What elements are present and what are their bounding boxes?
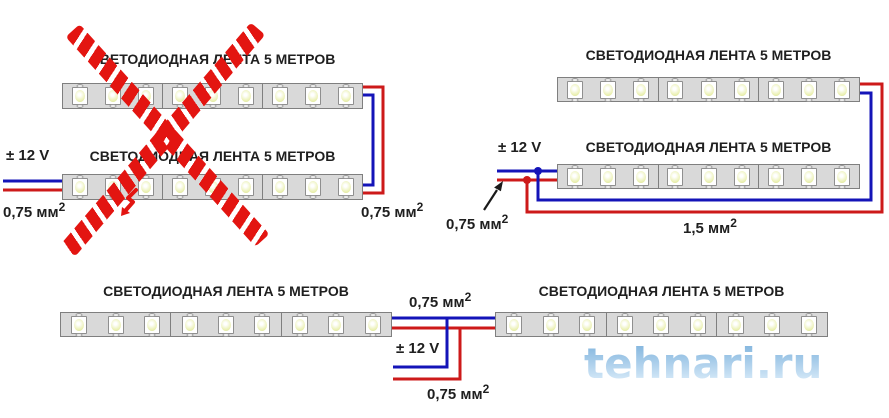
led-chip-icon <box>728 316 744 334</box>
led-chip-icon <box>238 178 254 196</box>
led-glow-icon <box>620 319 630 331</box>
gauge-value: 0,75 мм <box>361 204 417 221</box>
strip-segment <box>496 313 607 336</box>
led-glow-icon <box>241 181 251 193</box>
led-chip-icon <box>172 87 188 105</box>
led-glow-icon <box>147 319 157 331</box>
led-chip-icon <box>338 178 354 196</box>
led-chip-icon <box>108 316 124 334</box>
led-chip-icon <box>567 168 583 186</box>
led-chip-icon <box>768 168 784 186</box>
gauge-pointer-arrow <box>484 190 497 210</box>
led-chip-icon <box>667 81 683 99</box>
led-glow-icon <box>241 90 251 102</box>
series-link-wire-blue <box>362 95 373 185</box>
led-glow-icon <box>185 319 195 331</box>
led-strip <box>495 312 828 337</box>
led-chip-icon <box>138 178 154 196</box>
strip-segment <box>607 313 718 336</box>
strip-title: СВЕТОДИОДНАЯ ЛЕНТА 5 МЕТРОВ <box>557 139 860 155</box>
led-chip-icon <box>144 316 160 334</box>
gauge-value: 0,75 мм <box>446 216 502 233</box>
led-chip-icon <box>506 316 522 334</box>
led-chip-icon <box>834 81 850 99</box>
led-glow-icon <box>771 84 781 96</box>
led-strip <box>62 83 363 109</box>
strip-segment <box>263 175 362 199</box>
led-glow-icon <box>737 171 747 183</box>
led-glow-icon <box>141 181 151 193</box>
gauge-label: 0,75 мм2 <box>427 382 489 403</box>
strip-title: СВЕТОДИОДНАЯ ЛЕНТА 5 МЕТРОВ <box>62 51 363 67</box>
led-glow-icon <box>141 90 151 102</box>
led-glow-icon <box>275 90 285 102</box>
led-chip-icon <box>600 168 616 186</box>
led-glow-icon <box>74 319 84 331</box>
strip-segment <box>659 78 760 101</box>
strip-segment <box>171 313 281 336</box>
led-chip-icon <box>617 316 633 334</box>
strip-title: СВЕТОДИОДНАЯ ЛЕНТА 5 МЕТРОВ <box>495 283 828 299</box>
strip-title: СВЕТОДИОДНАЯ ЛЕНТА 5 МЕТРОВ <box>60 283 392 299</box>
led-strip <box>60 312 392 337</box>
led-chip-icon <box>734 81 750 99</box>
led-chip-icon <box>801 81 817 99</box>
led-chip-icon <box>305 87 321 105</box>
led-glow-icon <box>731 319 741 331</box>
strip-segment <box>659 165 760 188</box>
led-glow-icon <box>221 319 231 331</box>
led-chip-icon <box>105 87 121 105</box>
strip-segment <box>282 313 391 336</box>
voltage-label: ± 12 V <box>498 139 541 156</box>
led-glow-icon <box>636 171 646 183</box>
led-chip-icon <box>734 168 750 186</box>
led-strip <box>557 77 860 102</box>
gauge-sup: 2 <box>483 382 490 396</box>
gauge-label: 1,5 мм2 <box>683 216 737 237</box>
led-chip-icon <box>182 316 198 334</box>
led-glow-icon <box>656 319 666 331</box>
led-glow-icon <box>570 171 580 183</box>
voltage-label: ± 12 V <box>396 340 439 357</box>
led-glow-icon <box>704 171 714 183</box>
strip-segment <box>558 165 659 188</box>
led-glow-icon <box>75 90 85 102</box>
strip-segment <box>717 313 827 336</box>
led-glow-icon <box>804 171 814 183</box>
strip-segment <box>759 78 859 101</box>
led-chip-icon <box>218 316 234 334</box>
led-glow-icon <box>603 84 613 96</box>
led-chip-icon <box>768 81 784 99</box>
led-glow-icon <box>837 84 847 96</box>
gauge-sup: 2 <box>730 216 737 230</box>
led-chip-icon <box>71 316 87 334</box>
led-glow-icon <box>175 90 185 102</box>
led-glow-icon <box>75 181 85 193</box>
led-glow-icon <box>257 319 267 331</box>
led-strip <box>62 174 363 200</box>
strip-segment <box>558 78 659 101</box>
led-glow-icon <box>175 181 185 193</box>
gauge-sup: 2 <box>417 200 424 214</box>
led-glow-icon <box>771 171 781 183</box>
led-chip-icon <box>338 87 354 105</box>
voltage-label: ± 12 V <box>6 147 49 164</box>
led-chip-icon <box>254 316 270 334</box>
gauge-value: 0,75 мм <box>3 204 59 221</box>
led-glow-icon <box>308 181 318 193</box>
led-chip-icon <box>633 168 649 186</box>
led-chip-icon <box>543 316 559 334</box>
led-glow-icon <box>804 84 814 96</box>
led-glow-icon <box>341 181 351 193</box>
led-chip-icon <box>834 168 850 186</box>
led-glow-icon <box>670 171 680 183</box>
led-glow-icon <box>603 171 613 183</box>
led-chip-icon <box>567 81 583 99</box>
gauge-label: 0,75 мм2 <box>361 200 423 221</box>
led-chip-icon <box>172 178 188 196</box>
led-glow-icon <box>704 84 714 96</box>
led-glow-icon <box>368 319 378 331</box>
led-glow-icon <box>111 319 121 331</box>
led-glow-icon <box>341 90 351 102</box>
led-glow-icon <box>208 90 218 102</box>
led-chip-icon <box>272 87 288 105</box>
led-glow-icon <box>546 319 556 331</box>
led-chip-icon <box>801 316 817 334</box>
led-chip-icon <box>701 81 717 99</box>
gauge-pointer-arrowhead <box>494 181 503 191</box>
led-chip-icon <box>667 168 683 186</box>
junction-dot-blue <box>534 167 542 175</box>
led-glow-icon <box>308 90 318 102</box>
led-chip-icon <box>305 178 321 196</box>
gauge-label: 0,75 мм2 <box>3 200 65 221</box>
strip-title: СВЕТОДИОДНАЯ ЛЕНТА 5 МЕТРОВ <box>62 148 363 164</box>
led-chip-icon <box>764 316 780 334</box>
led-strip-wiring-diagram: СВЕТОДИОДНАЯ ЛЕНТА 5 МЕТРОВ СВЕТОДИОДНАЯ… <box>0 0 889 418</box>
strip-segment <box>263 84 362 108</box>
led-glow-icon <box>108 181 118 193</box>
gauge-label: 0,75 мм2 <box>446 212 508 233</box>
led-chip-icon <box>105 178 121 196</box>
led-chip-icon <box>205 178 221 196</box>
led-chip-icon <box>72 178 88 196</box>
led-glow-icon <box>509 319 519 331</box>
led-glow-icon <box>582 319 592 331</box>
gauge-sup: 2 <box>502 212 509 226</box>
gauge-value: 0,75 мм <box>409 294 465 311</box>
led-chip-icon <box>579 316 595 334</box>
gauge-sup: 2 <box>59 200 66 214</box>
led-chip-icon <box>690 316 706 334</box>
led-chip-icon <box>328 316 344 334</box>
led-chip-icon <box>600 81 616 99</box>
led-glow-icon <box>737 84 747 96</box>
led-glow-icon <box>693 319 703 331</box>
led-chip-icon <box>292 316 308 334</box>
strip-segment <box>63 84 163 108</box>
led-chip-icon <box>138 87 154 105</box>
watermark-logo: tehnari.ru <box>584 341 822 387</box>
strip-segment <box>61 313 171 336</box>
led-chip-icon <box>365 316 381 334</box>
junction-dot-red <box>523 176 531 184</box>
strip-segment <box>163 175 263 199</box>
led-chip-icon <box>205 87 221 105</box>
led-chip-icon <box>272 178 288 196</box>
led-glow-icon <box>295 319 305 331</box>
led-glow-icon <box>636 84 646 96</box>
led-glow-icon <box>108 90 118 102</box>
led-glow-icon <box>837 171 847 183</box>
strip-title: СВЕТОДИОДНАЯ ЛЕНТА 5 МЕТРОВ <box>557 47 860 63</box>
led-strip <box>557 164 860 189</box>
strip-segment <box>63 175 163 199</box>
led-glow-icon <box>331 319 341 331</box>
gauge-value: 1,5 мм <box>683 220 730 237</box>
led-chip-icon <box>701 168 717 186</box>
led-glow-icon <box>804 319 814 331</box>
led-chip-icon <box>238 87 254 105</box>
led-chip-icon <box>801 168 817 186</box>
led-chip-icon <box>72 87 88 105</box>
gauge-value: 0,75 мм <box>427 386 483 403</box>
led-glow-icon <box>208 181 218 193</box>
led-chip-icon <box>653 316 669 334</box>
led-glow-icon <box>570 84 580 96</box>
led-glow-icon <box>767 319 777 331</box>
led-glow-icon <box>670 84 680 96</box>
gauge-sup: 2 <box>465 290 472 304</box>
gauge-label: 0,75 мм2 <box>409 290 471 311</box>
led-glow-icon <box>275 181 285 193</box>
strip-segment <box>759 165 859 188</box>
strip-segment <box>163 84 263 108</box>
led-chip-icon <box>633 81 649 99</box>
